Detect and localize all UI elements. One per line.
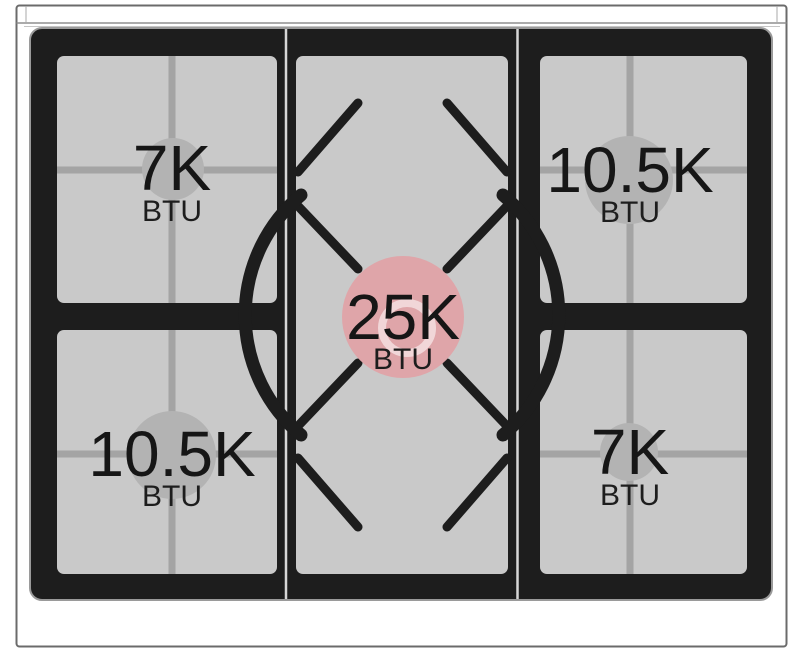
grate-bottom-right: 7K BTU — [540, 330, 747, 574]
burner-unit-label: BTU — [142, 480, 202, 513]
burner-unit-label: BTU — [142, 195, 202, 228]
burner-power-label: 7K — [133, 132, 211, 204]
burner-power-label: 7K — [591, 416, 669, 488]
grate-center: 25K BTU — [296, 56, 508, 574]
burner-unit-label: BTU — [600, 479, 660, 512]
burner-unit-label: BTU — [373, 343, 433, 376]
cooktop-diagram: 7K BTU 10.5K BTU 10.5K BTU 7K BTU — [0, 0, 792, 664]
grate-top-left: 7K BTU — [57, 56, 277, 303]
burner-unit-label: BTU — [600, 196, 660, 229]
grate-top-right: 10.5K BTU — [540, 56, 747, 303]
grate-bottom-left: 10.5K BTU — [57, 330, 277, 574]
